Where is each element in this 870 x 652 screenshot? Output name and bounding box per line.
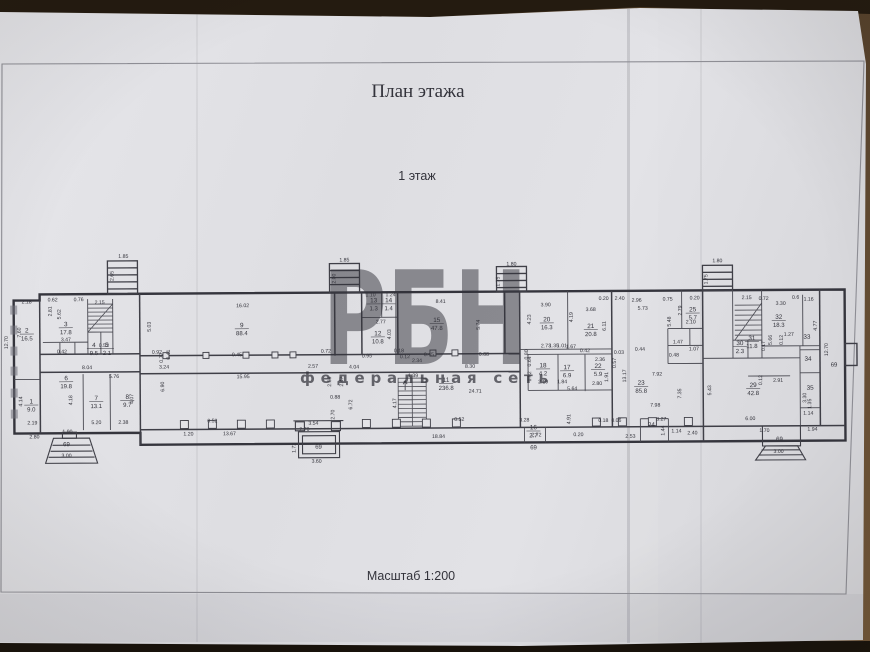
photographed-floor-plan-sheet: План этажа 1 этаж Масштаб 1:200 (0, 0, 870, 652)
floor-plan-photo: План этажа 1 этаж Масштаб 1:200 (0, 0, 870, 652)
photo-vignette (0, 0, 870, 652)
